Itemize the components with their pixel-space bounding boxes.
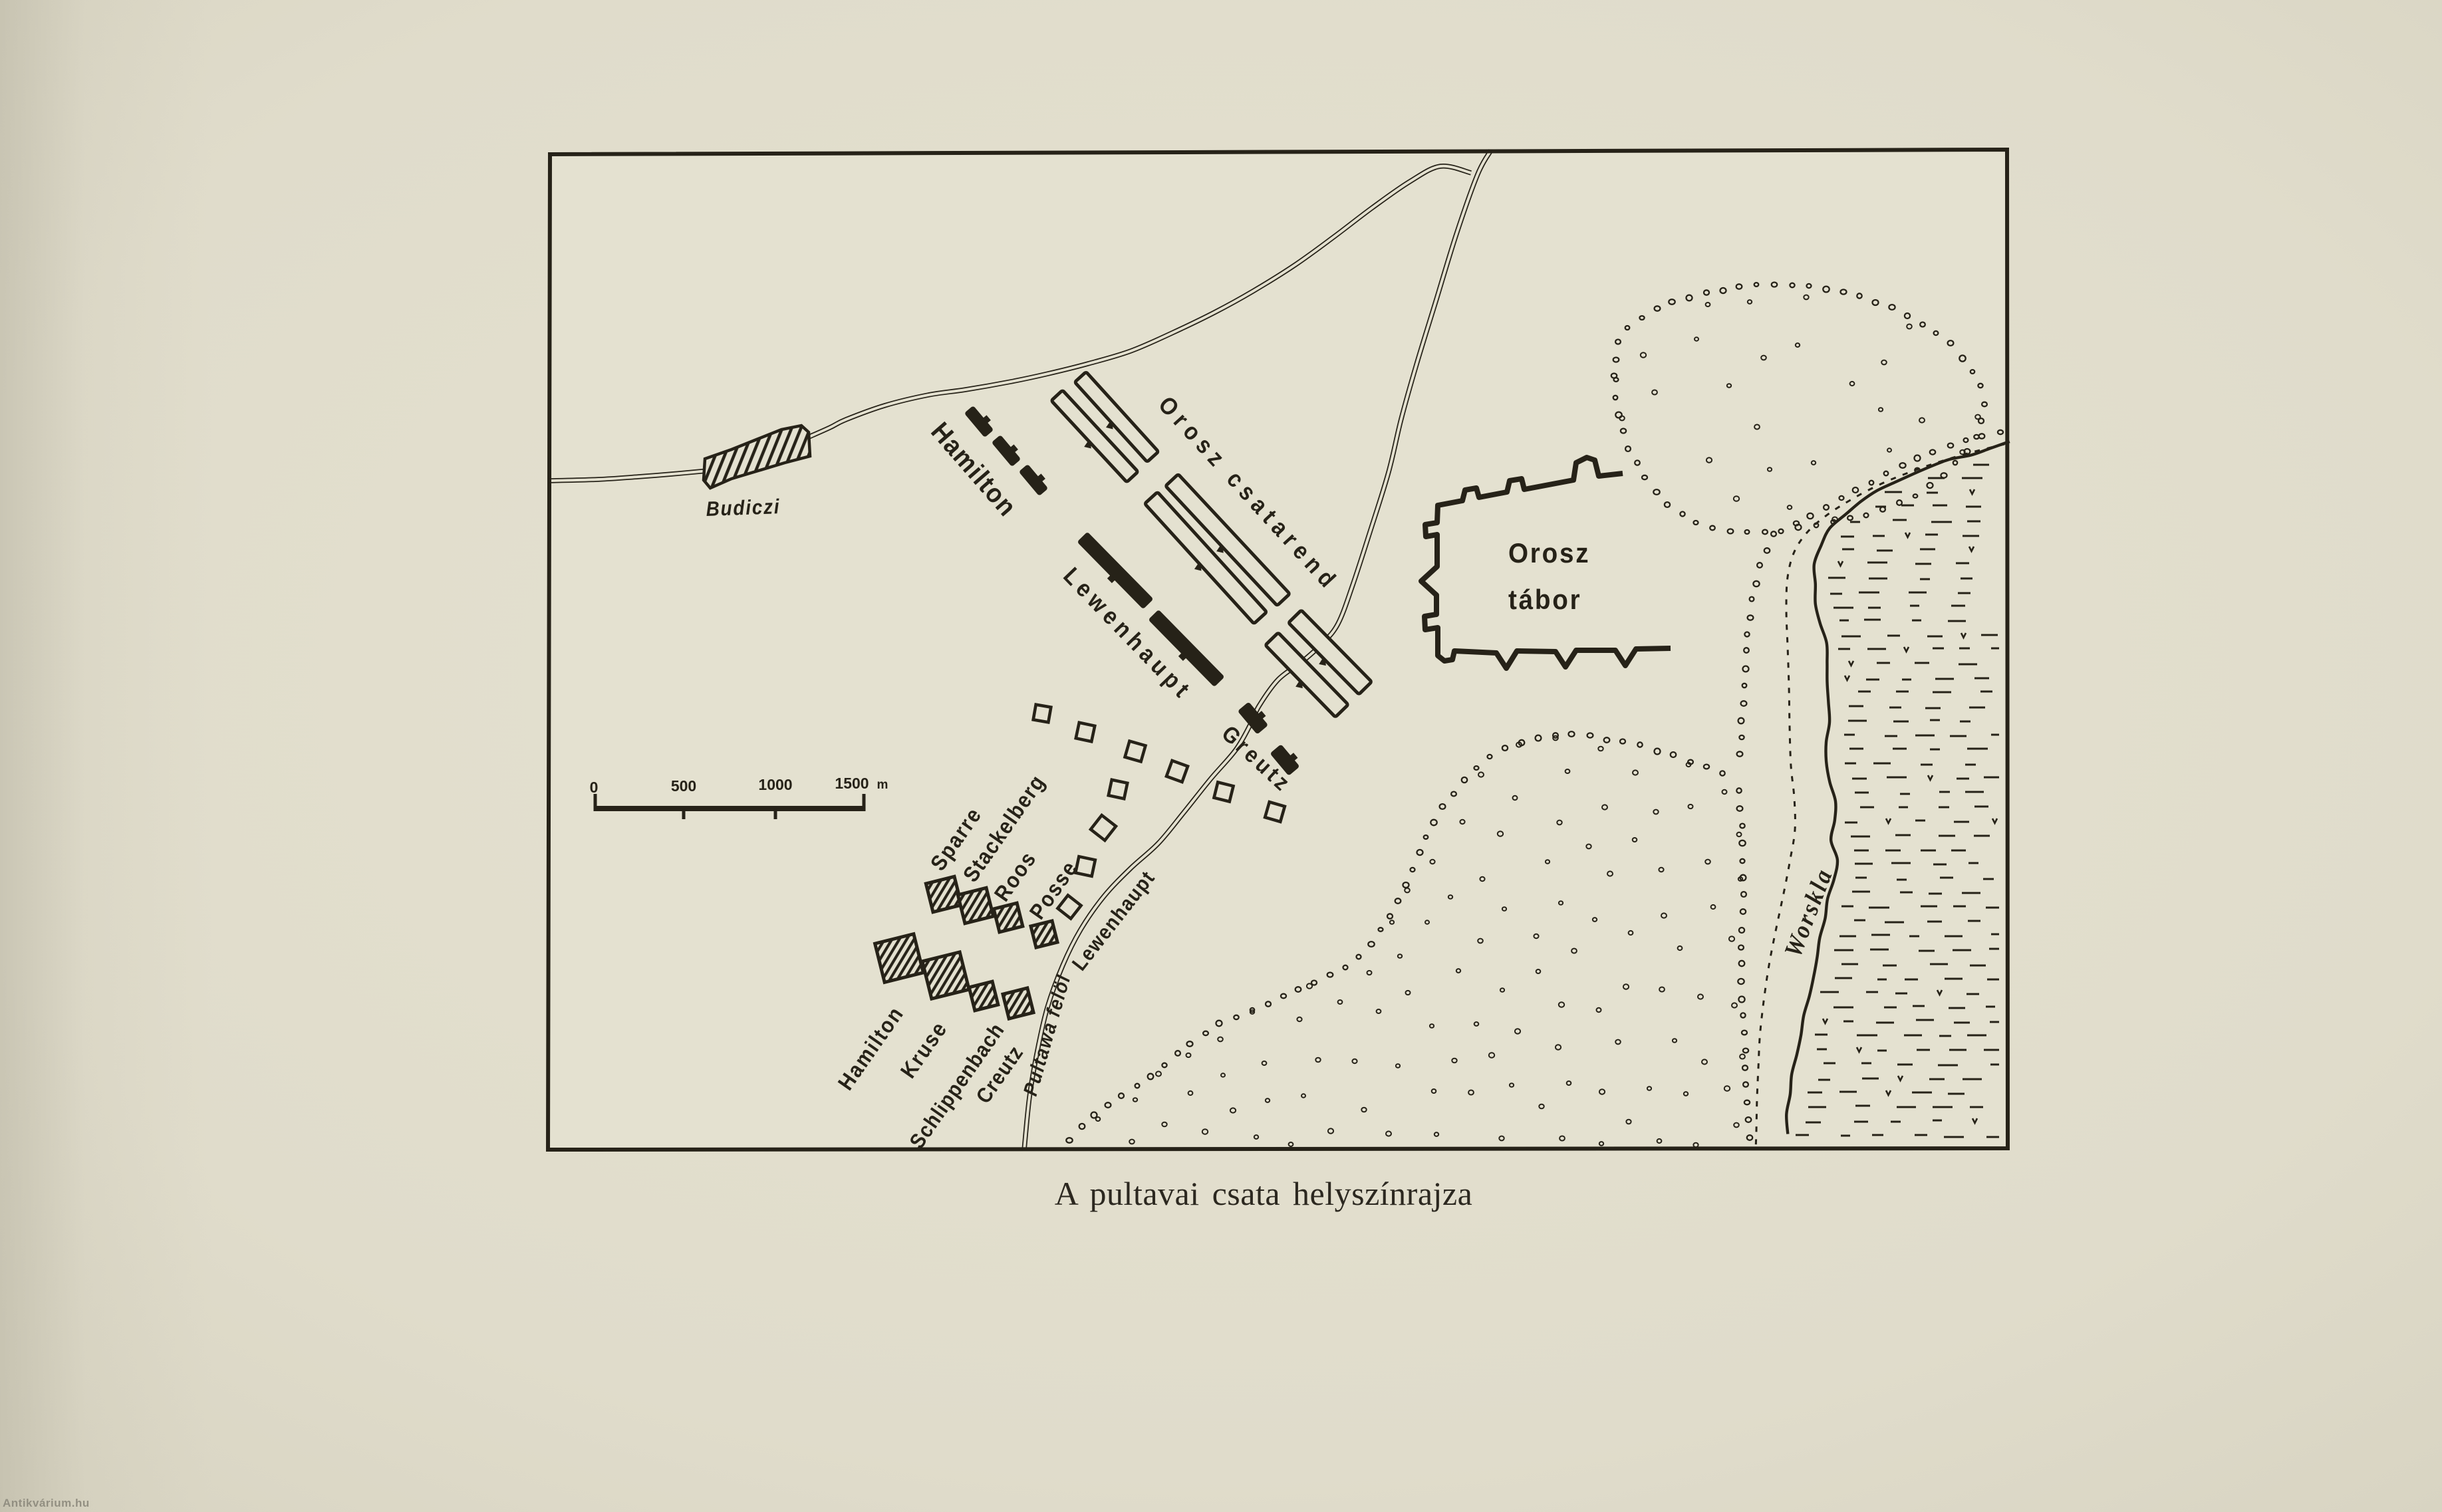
svg-text:0: 0: [590, 779, 599, 796]
svg-text:1500: 1500: [835, 775, 869, 792]
svg-text:Antikvárium.hu: Antikvárium.hu: [3, 1497, 90, 1509]
svg-text:1000: 1000: [758, 776, 792, 793]
svg-text:m: m: [877, 778, 888, 792]
svg-text:Orosz: Orosz: [1508, 537, 1590, 568]
svg-text:500: 500: [671, 777, 696, 795]
svg-text:tábor: tábor: [1508, 583, 1581, 615]
svg-text:A pultavai csata helyszínrajza: A pultavai csata helyszínrajza: [1055, 1175, 1473, 1212]
svg-text:Budiczi: Budiczi: [706, 495, 781, 521]
